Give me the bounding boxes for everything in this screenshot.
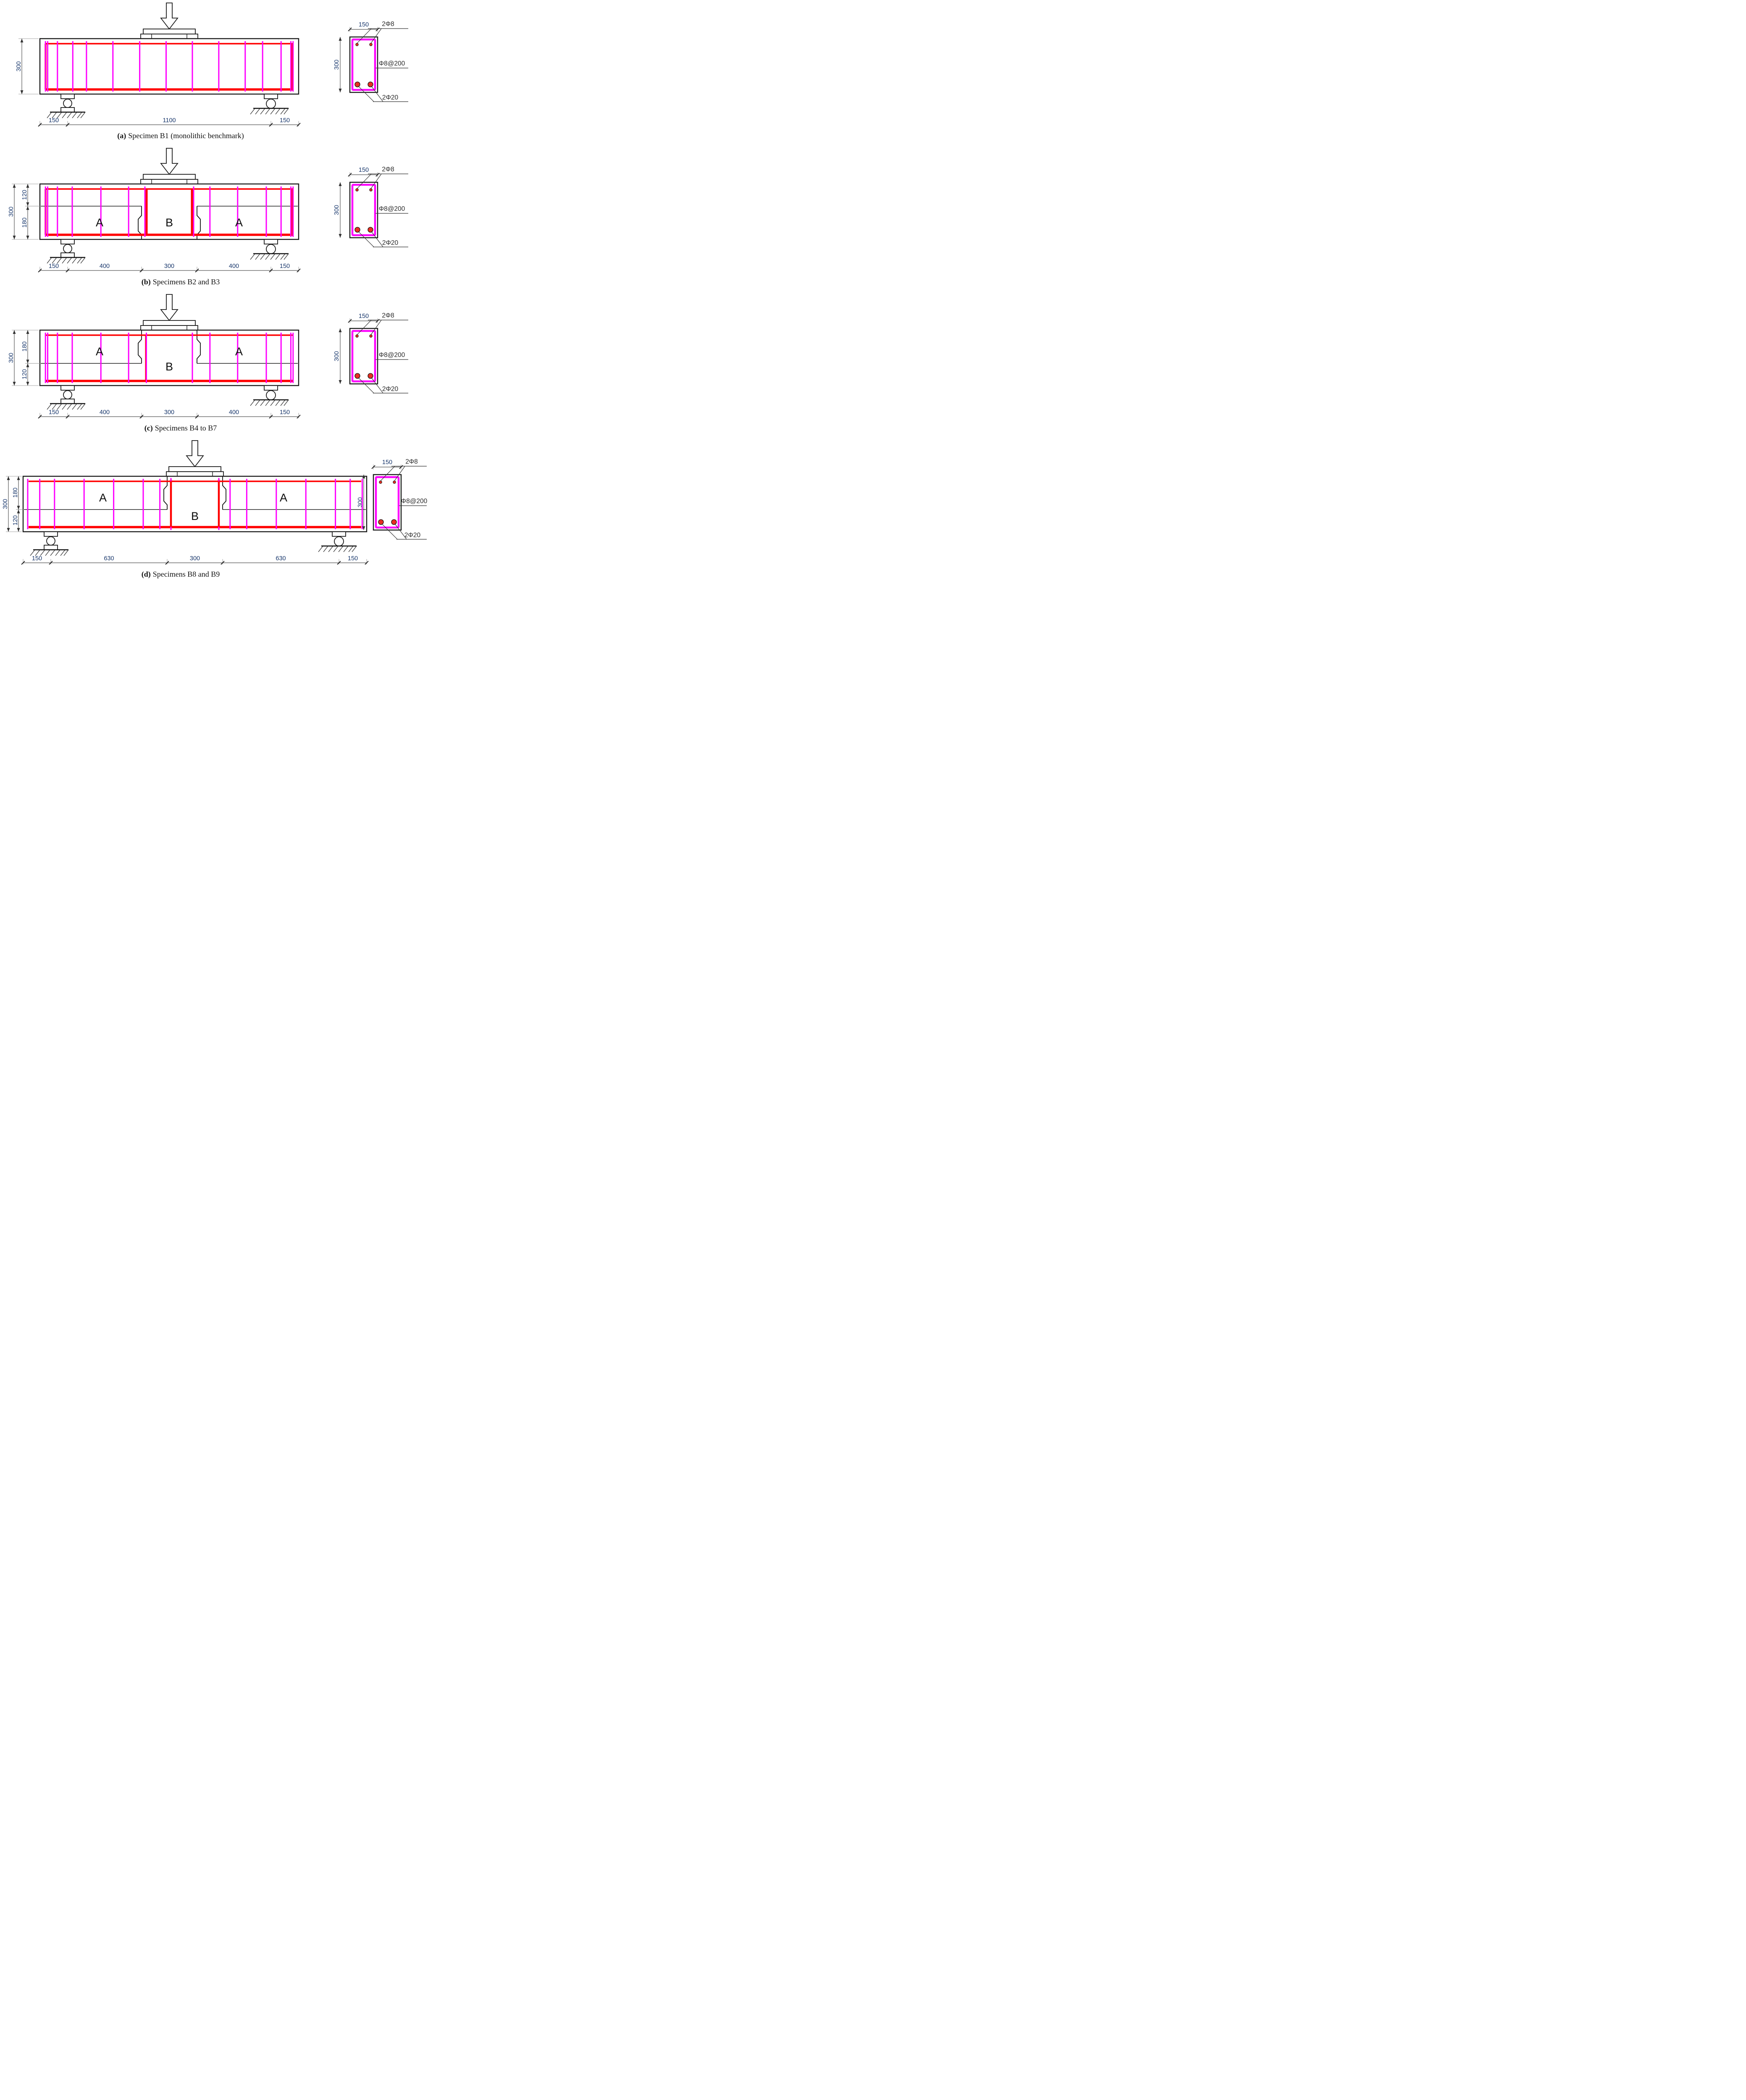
dim-300: 300	[2, 499, 9, 509]
dim-180: 180	[21, 218, 28, 228]
cs-top-bar	[356, 335, 358, 337]
dim-180: 180	[12, 488, 19, 498]
dim-300: 300	[16, 61, 22, 71]
dim-180: 180	[21, 341, 28, 352]
cs-stirrups-label: Φ8@200	[379, 352, 405, 359]
cs-bottom-bar	[368, 373, 373, 378]
dim-seg: 150	[280, 263, 290, 270]
cs-bottom-bar	[368, 227, 373, 232]
dim-120: 120	[21, 190, 28, 200]
caption-a-label: (a)	[117, 131, 126, 140]
region-label-b: B	[191, 510, 199, 522]
cs-dim-150: 150	[359, 21, 369, 28]
dim-seg: 400	[229, 409, 239, 416]
roller-support	[250, 239, 289, 260]
cs-bottom-bars-label: 2Φ20	[382, 94, 399, 101]
roller-support	[250, 386, 289, 406]
cs-bottom-bars-label: 2Φ20	[382, 239, 399, 247]
specimens-b2-b3-drawing: A B A 30	[0, 145, 437, 276]
load-arrow-icon	[141, 294, 198, 330]
region-label-b: B	[165, 216, 173, 229]
beam-outline	[40, 330, 299, 386]
beam-outline	[40, 184, 299, 239]
dim-150-right: 150	[280, 117, 290, 124]
cs-dim-300: 300	[333, 205, 340, 215]
caption-c: (c)Specimens B4 to B7	[0, 424, 361, 433]
dim-seg: 630	[104, 555, 114, 562]
cs-bottom-bar	[391, 520, 396, 525]
caption-a-text: Specimen B1 (monolithic benchmark)	[128, 131, 244, 140]
cs-bottom-bars-label: 2Φ20	[404, 532, 421, 539]
load-arrow-icon	[166, 441, 223, 476]
specimens-b4-b7-drawing: A B A 30	[0, 291, 437, 423]
length-dimensions: 150 630 300 630 150	[21, 555, 368, 564]
pin-support	[47, 386, 85, 409]
cs-bottom-bar	[355, 227, 360, 232]
cs-dim-150: 150	[359, 313, 369, 320]
region-label-a-left: A	[99, 491, 107, 504]
dim-seg: 300	[164, 409, 174, 416]
caption-d: (d)Specimens B8 and B9	[0, 570, 361, 579]
cs-bottom-bars-label: 2Φ20	[382, 386, 399, 393]
cross-section: 150 300 2Φ8 Φ8@200 2Φ20	[333, 312, 408, 393]
dim-seg: 150	[32, 555, 42, 562]
region-label-a-left: A	[96, 216, 103, 229]
cs-top-bar	[356, 189, 358, 191]
dim-seg: 400	[229, 263, 239, 270]
region-label-a-left: A	[96, 345, 103, 358]
panel-c: A B A 30	[0, 291, 437, 433]
caption-b: (b)Specimens B2 and B3	[0, 278, 361, 286]
dim-seg: 150	[348, 555, 358, 562]
region-label-a-right: A	[280, 491, 287, 504]
region-label-a-right: A	[235, 216, 243, 229]
cs-bottom-bar	[368, 82, 373, 87]
dim-120: 120	[21, 369, 28, 379]
caption-c-text: Specimens B4 to B7	[155, 424, 217, 432]
roller-support	[250, 94, 289, 114]
cs-top-bar	[393, 481, 396, 483]
pin-support	[47, 94, 85, 118]
height-dimension: 300	[16, 39, 39, 94]
dim-120: 120	[12, 515, 19, 525]
caption-d-text: Specimens B8 and B9	[153, 570, 220, 578]
load-arrow-icon	[141, 3, 198, 39]
dim-seg: 150	[49, 263, 59, 270]
height-dimensions: 300 120 180	[8, 184, 40, 239]
cs-top-bar	[370, 335, 372, 337]
region-label-b: B	[165, 360, 173, 373]
pin-support	[30, 532, 68, 556]
cs-dim-300: 300	[333, 351, 340, 361]
cross-section: 150 300 2Φ8 Φ8@200 2Φ20	[333, 21, 408, 102]
beam-outline	[23, 476, 367, 532]
cross-section: 150 300 2Φ8 Φ8@200 2Φ20	[357, 458, 428, 539]
cs-bottom-bar	[355, 373, 360, 378]
length-dimensions: 150 400 300 400 150	[38, 263, 300, 272]
specimen-b1-drawing: 300 150 1100 150	[0, 1, 437, 130]
caption-a: (a)Specimen B1 (monolithic benchmark)	[0, 131, 361, 140]
dim-seg: 400	[100, 263, 110, 270]
dim-300: 300	[8, 207, 15, 217]
panel-d: A B A 30	[0, 438, 437, 579]
cs-concrete	[350, 182, 378, 238]
dim-seg: 300	[190, 555, 200, 562]
pin-support	[47, 239, 85, 263]
height-dimensions: 300 180 120	[8, 330, 40, 386]
dim-seg: 300	[164, 263, 174, 270]
length-dimensions: 150 400 300 400 150	[38, 409, 300, 418]
cross-section: 150 300 2Φ8 Φ8@200 2Φ20	[333, 166, 408, 247]
cs-top-bar	[370, 189, 372, 191]
cs-dim-300: 300	[333, 60, 340, 70]
cs-stirrups-label: Φ8@200	[379, 60, 405, 67]
cs-stirrups-label: Φ8@200	[401, 498, 428, 505]
panel-b: A B A 30	[0, 145, 437, 286]
cs-top-bars-label: 2Φ8	[405, 458, 418, 465]
cs-bottom-bar	[355, 82, 360, 87]
length-dimensions: 150 1100 150	[38, 117, 300, 126]
cs-stirrups-label: Φ8@200	[379, 205, 405, 213]
dim-150-left: 150	[49, 117, 59, 124]
caption-b-label: (b)	[142, 278, 151, 286]
cs-top-bars-label: 2Φ8	[382, 166, 394, 173]
dim-1100: 1100	[163, 117, 176, 124]
beam-outline	[40, 39, 299, 94]
caption-d-label: (d)	[142, 570, 151, 578]
cs-top-bar	[379, 481, 382, 483]
cs-top-bar	[370, 43, 372, 46]
caption-c-label: (c)	[144, 424, 153, 432]
cs-dim-150: 150	[382, 459, 392, 466]
cs-concrete	[350, 328, 378, 384]
region-label-a-right: A	[235, 345, 243, 358]
cs-concrete	[350, 37, 378, 92]
roller-support	[318, 532, 357, 552]
cs-concrete	[373, 475, 401, 530]
dim-seg: 150	[280, 409, 290, 416]
dim-seg: 400	[100, 409, 110, 416]
figure-page: 300 150 1100 150	[0, 0, 437, 586]
dim-seg: 150	[49, 409, 59, 416]
caption-b-text: Specimens B2 and B3	[153, 278, 220, 286]
panel-a: 300 150 1100 150	[0, 1, 437, 140]
cs-top-bars-label: 2Φ8	[382, 21, 394, 28]
height-dimensions: 300 180 120	[2, 476, 24, 532]
cs-dim-300: 300	[357, 497, 364, 507]
dim-seg: 630	[276, 555, 286, 562]
cs-bottom-bar	[378, 520, 383, 525]
specimens-b8-b9-drawing: A B A 30	[0, 438, 437, 569]
cs-dim-150: 150	[359, 167, 369, 173]
dim-300: 300	[8, 353, 15, 363]
load-arrow-icon	[141, 148, 198, 184]
cs-top-bars-label: 2Φ8	[382, 312, 394, 319]
cs-top-bar	[356, 43, 358, 46]
